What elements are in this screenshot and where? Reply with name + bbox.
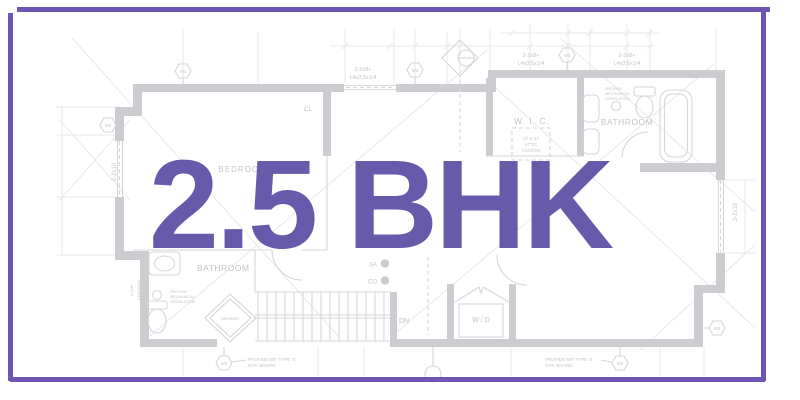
closet-label: CL xyxy=(304,106,313,113)
beam-label-rotated: L4x3.5x1/4 xyxy=(136,279,141,299)
vent-note: MECHANICAL xyxy=(605,92,630,96)
window-tag-label: W3 xyxy=(180,69,187,74)
window-tag-label: W4 xyxy=(105,123,112,128)
co-detector-dot xyxy=(381,276,389,284)
beam-label: 2-2x8+ xyxy=(355,67,372,73)
beam-label: L4x3.5x1/4 xyxy=(614,61,641,67)
room-label-bathroom-top: BATHROOM xyxy=(601,117,653,127)
window-tag-label: W3 xyxy=(617,361,624,366)
sink-top-1 xyxy=(583,95,599,122)
joist-label-right: 2-2x10 xyxy=(733,202,739,221)
detector-dots xyxy=(381,259,389,284)
window-tag-label: W3 xyxy=(714,326,721,331)
floor-plan-card: BEDROOM 3 W. I. C. BATHROOM BATHROOM W /… xyxy=(0,0,800,400)
supply-air-label: SA xyxy=(369,263,377,269)
supply-air-dot xyxy=(381,259,389,267)
vent-note: VENTILATION xyxy=(170,300,195,304)
gyp-note: PROVIDE 5/8" TYPE 'X' xyxy=(248,357,296,362)
window-tag-label: W3 xyxy=(221,361,228,366)
room-label-wd: W / D xyxy=(472,317,490,324)
beam-label: 2-2x8+ xyxy=(523,53,540,59)
vent-fan-icon-2 xyxy=(153,291,162,300)
room-label-bathroom-bottom: BATHROOM xyxy=(197,263,249,273)
joist-label-left: 2-2x10 xyxy=(112,162,118,181)
gyp-note: GYP. BOARD xyxy=(545,363,573,368)
vent-note: PROVIDE xyxy=(605,87,623,91)
attic-note: ATTIC xyxy=(525,142,538,147)
room-label-wic: W. I. C. xyxy=(514,116,550,126)
toilet-tank-bottom xyxy=(147,301,167,309)
beam-label: L4x3.5x1/4 xyxy=(350,75,377,81)
sink-top-2 xyxy=(583,129,599,154)
vent-note: PROVIDE xyxy=(170,290,188,294)
toilet-bowl-bottom xyxy=(148,309,166,333)
attic-note: 27 X 27 xyxy=(523,136,539,141)
floor-plan-drawing: BEDROOM 3 W. I. C. BATHROOM BATHROOM W /… xyxy=(0,0,800,400)
gyp-note: GYP. BOARD xyxy=(248,363,276,368)
beam-label: 2-2x8+ xyxy=(619,53,636,59)
vent-fan-icon xyxy=(612,102,621,111)
stair-treads xyxy=(258,292,384,341)
window-tag-label: W3 xyxy=(412,68,419,73)
plan-labels: BEDROOM 3 W. I. C. BATHROOM BATHROOM W /… xyxy=(105,53,739,368)
beam-label: L4x3.5x1/4 xyxy=(518,61,545,67)
stair-dn-label: DN xyxy=(399,318,409,325)
shower-label: SHOWER xyxy=(221,316,239,321)
vent-note: MECHANICAL xyxy=(170,295,195,299)
vent-note: VENTILATION xyxy=(605,97,630,101)
frame-border-top xyxy=(17,7,770,12)
toilet-tank-top xyxy=(634,87,655,96)
toilet-bowl-top xyxy=(636,96,653,118)
room-label-bedroom3: BEDROOM 3 xyxy=(218,165,275,174)
beam-label-rotated: 2-2x8+ xyxy=(129,283,134,296)
attic-note: ACCESS xyxy=(522,148,541,153)
walls xyxy=(115,70,725,347)
frame-border-bottom xyxy=(10,377,765,382)
co-label: CO xyxy=(368,280,377,286)
gyp-note: PROVIDE 5/8" TYPE 'X' xyxy=(545,357,593,362)
frame-border-left xyxy=(8,13,13,381)
window-tag-label: W3 xyxy=(564,53,571,58)
frame-border-right xyxy=(761,10,766,381)
